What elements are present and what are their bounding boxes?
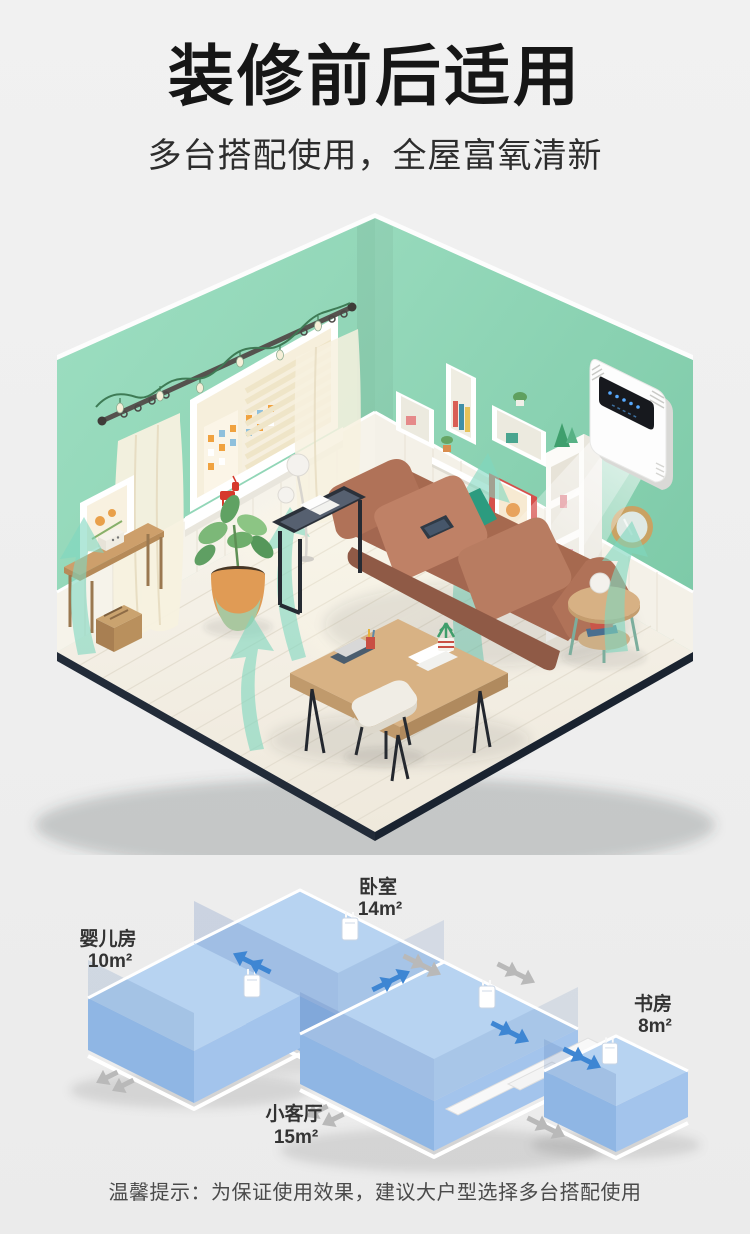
room-label-study: 书房 (634, 992, 672, 1015)
room-label-livingroom: 小客厅 (265, 1102, 322, 1125)
footer-tip: 温馨提示：为保证使用效果，建议大户型选择多台搭配使用 (0, 1176, 750, 1205)
vent-arrow (494, 956, 523, 982)
room-label-bedroom: 卧室 (359, 875, 397, 898)
room-area-bedroom: 14m² (358, 899, 402, 920)
page-title: 装修前后适用 (0, 40, 750, 113)
room-area-babyroom: 10m² (88, 951, 132, 972)
room-label-babyroom: 婴儿房 (79, 927, 136, 950)
page-subtitle: 多台搭配使用，全屋富氧清新 (0, 128, 750, 177)
room-area-livingroom: 15m² (274, 1127, 318, 1148)
room-area-study: 8m² (638, 1016, 672, 1037)
living-room-illustration (0, 195, 750, 855)
floorplan-diagram: 卧室 14m² 婴儿房 10m² 书房 8m² 小客厅 15m² (0, 855, 750, 1185)
